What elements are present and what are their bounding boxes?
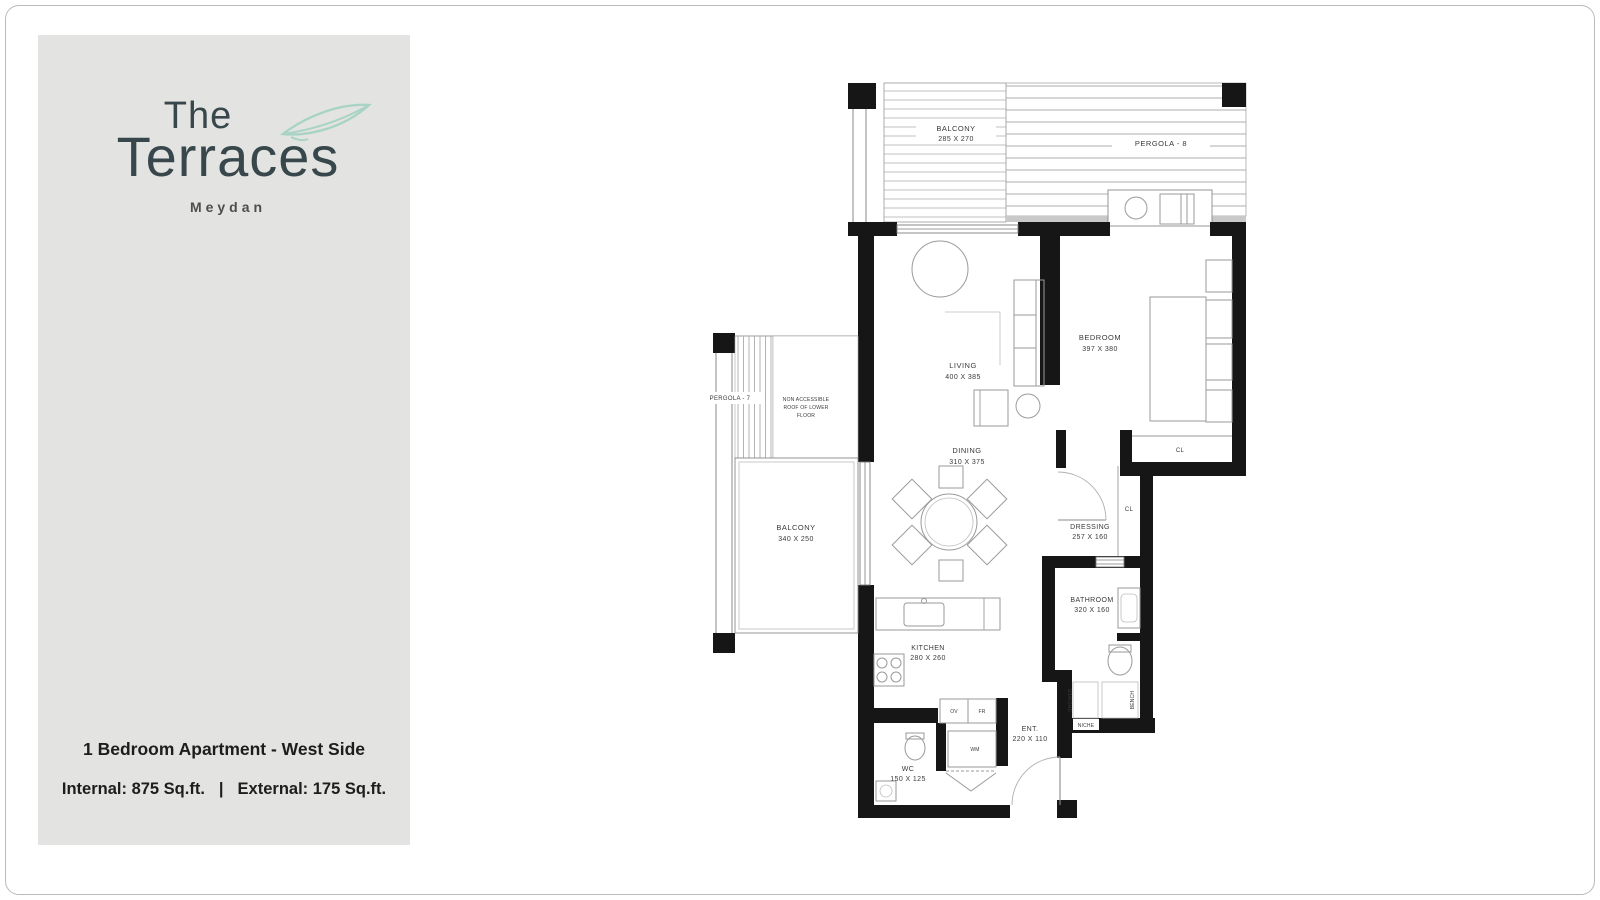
shower-tray (1073, 682, 1098, 718)
chair (892, 525, 932, 565)
sliding-doors (860, 225, 1124, 585)
living-dims: 400 X 385 (945, 374, 981, 381)
toilet (1108, 647, 1132, 675)
pillow (1206, 390, 1232, 422)
top-balcony: BALCONY 285 X 270 (848, 83, 1006, 222)
dining-label: DINING (952, 446, 981, 455)
sink (904, 603, 944, 626)
column (1222, 83, 1246, 107)
niche-label: NICHE (1078, 723, 1095, 729)
round-rug (912, 241, 968, 297)
closet-label: CL (1176, 448, 1185, 454)
floorplan-brochure-page: The Terraces Meydan 1 Bedroom Apartment … (0, 0, 1600, 900)
dressing-closet-label: CL (1125, 507, 1134, 513)
dining-dims: 310 X 375 (949, 459, 985, 466)
roof-of-lower-floor: NON ACCESSIBLE ROOF OF LOWER FLOOR (773, 336, 858, 458)
entrance-dims: 220 X 110 (1013, 736, 1048, 743)
balcony-left-dims: 340 X 250 (778, 536, 814, 543)
roof-note-line1: NON ACCESSIBLE (783, 397, 830, 403)
column (713, 333, 735, 353)
chair (939, 560, 963, 581)
bed (1150, 297, 1206, 421)
wc-basin (876, 781, 896, 801)
column (848, 83, 876, 109)
folding-door (946, 773, 996, 791)
shower-label: SHOWER (1068, 688, 1074, 712)
bathroom-label: BATHROOM (1070, 597, 1113, 604)
kitchen-dims: 280 X 260 (910, 655, 946, 662)
chair (967, 479, 1007, 519)
column (713, 633, 735, 653)
appliances: OV FR WM (940, 699, 996, 791)
roof-note-line2: ROOF OF LOWER (783, 405, 828, 411)
chair (939, 466, 963, 488)
bench-label: BENCH (1130, 691, 1136, 710)
dining-table (921, 494, 977, 550)
fridge-label: FR (978, 709, 985, 715)
balcony-left-label: BALCONY (776, 523, 815, 532)
pergola-7-label: PERGOLA - 7 (710, 396, 751, 402)
kitchen-label: KITCHEN (911, 645, 945, 652)
bedroom: BEDROOM 397 X 380 CL (1079, 260, 1232, 454)
chair (967, 525, 1007, 565)
wc-label: WC (902, 766, 914, 773)
bedroom-dims: 397 X 380 (1082, 346, 1118, 353)
entrance: ENT. 220 X 110 (1012, 726, 1060, 805)
entry-door-arc (1012, 757, 1060, 805)
oven-label: OV (950, 709, 958, 715)
dressing-label: DRESSING (1070, 524, 1110, 531)
living-room: LIVING 400 X 385 (912, 241, 1044, 426)
stove (874, 654, 904, 686)
pillow (1206, 260, 1232, 292)
dining-area: DINING 310 X 375 (892, 446, 1007, 581)
entrance-label: ENT. (1022, 726, 1039, 733)
floor-plan: BALCONY 285 X 270 PERGOLA - 8 (0, 0, 1600, 900)
living-label: LIVING (949, 361, 977, 370)
pillow (1206, 300, 1232, 338)
wc-dims: 150 X 125 (890, 776, 926, 783)
roof-note-line3: FLOOR (797, 413, 815, 419)
pillow (1206, 344, 1232, 380)
basin (1121, 594, 1137, 622)
washing-machine-label: WM (970, 747, 979, 753)
sofa (1014, 280, 1044, 386)
left-balcony: BALCONY 340 X 250 (735, 458, 858, 633)
toilet (905, 736, 925, 760)
dressing-room: CL DRESSING 257 X 160 (1058, 466, 1133, 556)
wc: WC 150 X 125 (876, 733, 926, 801)
bedroom-closet: CL (1132, 436, 1232, 454)
walls (848, 222, 1246, 818)
pergola-8-label: PERGOLA - 8 (1135, 139, 1187, 148)
dressing-dims: 257 X 160 (1072, 534, 1108, 541)
armchair (974, 390, 1008, 426)
carpet-edge (945, 312, 1000, 365)
bathroom: BATHROOM 320 X 160 SHOWER NICHE BENCH (1068, 588, 1140, 730)
chair (892, 479, 932, 519)
bedroom-nook (1108, 190, 1212, 226)
side-table (1016, 394, 1040, 418)
balcony-top-label: BALCONY (936, 124, 975, 133)
bathroom-dims: 320 X 160 (1074, 607, 1110, 614)
bedroom-label: BEDROOM (1079, 333, 1121, 342)
balcony-top-dims: 285 X 270 (938, 136, 974, 143)
door-arc (1058, 472, 1106, 520)
